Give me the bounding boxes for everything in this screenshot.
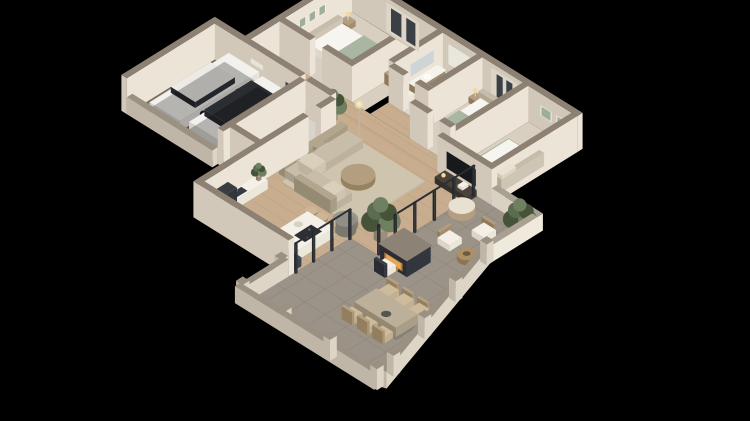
patio-post [480, 236, 493, 265]
egg-chair [448, 197, 475, 221]
glass-mullion [348, 208, 351, 240]
dining-decor [381, 311, 391, 317]
patio-post [418, 310, 431, 339]
patio-post [449, 273, 462, 302]
coffee-table [341, 164, 376, 191]
glass-mullion [330, 220, 333, 252]
glass-mullion [377, 224, 380, 256]
island-bowl [294, 221, 303, 227]
glass-mullion [312, 231, 315, 263]
vanity-basin [423, 74, 432, 79]
console-lamp [441, 173, 445, 177]
cooktop-burner [308, 228, 311, 231]
glass-mullion [294, 242, 297, 274]
floorplan-canvas [0, 0, 750, 421]
curtain-master-mid [401, 14, 406, 42]
side-table-decor [463, 251, 471, 256]
glass-mullion [433, 189, 437, 221]
floor-plan-3d-render [0, 0, 750, 421]
floor-lamp-glow [357, 102, 362, 107]
patio-post [370, 361, 383, 390]
lamp-master-1 [346, 12, 351, 17]
lamp-bed2 [473, 88, 478, 93]
glass-mullion [413, 201, 416, 233]
patio-post [323, 332, 337, 361]
patio-post [387, 347, 400, 376]
glass-mullion [472, 165, 475, 197]
